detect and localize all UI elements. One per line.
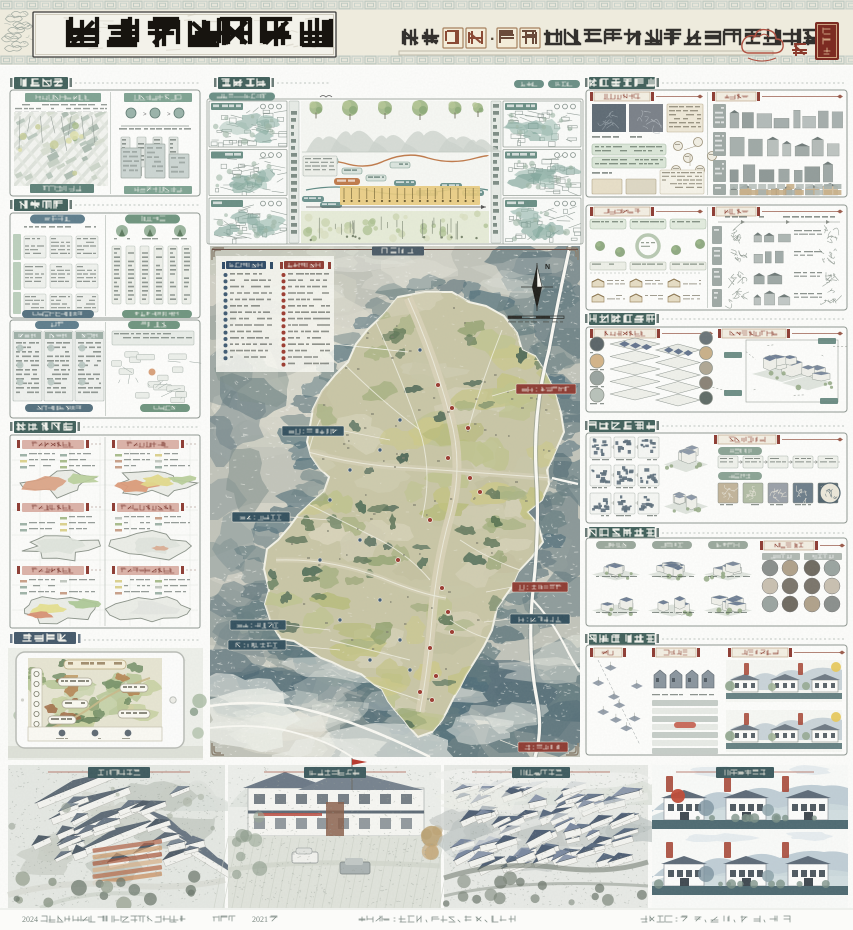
- svg-text:·: ·: [490, 31, 495, 48]
- svg-text:2021: 2021: [252, 915, 268, 924]
- svg-text:2024: 2024: [22, 915, 38, 924]
